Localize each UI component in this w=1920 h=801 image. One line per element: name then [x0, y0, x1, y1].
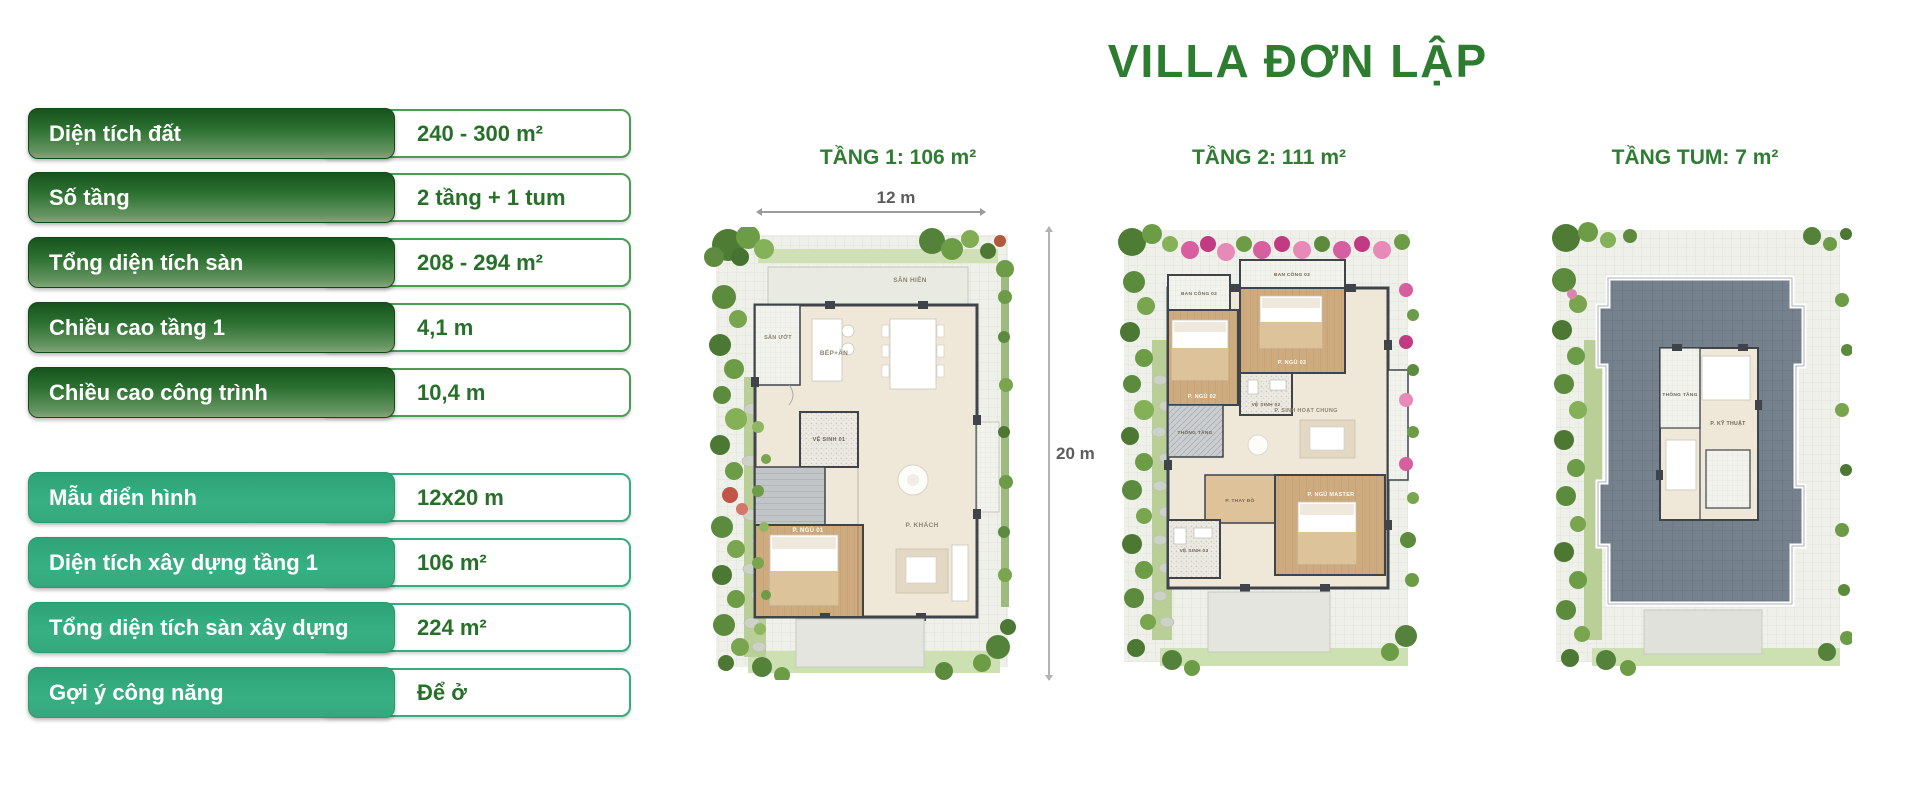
spec-label: Gợi ý công năng	[28, 667, 395, 718]
floor-plan-1-illustration: SÂN HIÊN SÂN ƯỚT BẾP+ĂN VỆ SINH 01 P. KH…	[700, 227, 1020, 680]
driveway	[1644, 610, 1762, 654]
plan-1-height-dimension: 20 m	[1056, 444, 1095, 464]
plan-3-heading: TẦNG TUM: 7 m²	[1545, 146, 1845, 170]
spec-value: 4,1 m	[417, 315, 473, 341]
room-label-bedroom1: P. NGỦ 01	[793, 527, 824, 534]
driveway	[1208, 592, 1330, 652]
floor-plan-3-illustration: THÔNG TẦNG P. KỸ THUẬT	[1542, 220, 1852, 680]
spec-value: 240 - 300 m²	[417, 121, 543, 147]
room-label-bedroom3: P. NGỦ 03	[1278, 359, 1307, 366]
spec-label: Diện tích xây dựng tầng 1	[28, 537, 395, 588]
spec-value: 10,4 m	[417, 380, 486, 406]
spec-label: Chiều cao tầng 1	[28, 302, 395, 353]
villa-infographic: VILLA ĐƠN LẬP 240 - 300 m² Diện tích đất…	[0, 0, 1920, 801]
room-label-porch: SÂN HIÊN	[893, 275, 926, 284]
plan-2-heading: TẦNG 2: 111 m²	[1119, 146, 1419, 170]
spec-label: Chiều cao công trình	[28, 367, 395, 418]
spec-label: Mẫu điển hình	[28, 472, 395, 523]
spec-value: 208 - 294 m²	[417, 250, 543, 276]
spec-value: 106 m²	[417, 550, 487, 576]
plan-1-width-dimension: 12 m	[846, 188, 946, 208]
floor-plan-2-illustration: BAN CÔNG 02 BAN CÔNG 03 P. NGỦ 03 P. NGỦ…	[1110, 220, 1420, 680]
spec-row-chieu-cao-tang-1: 4,1 m Chiều cao tầng 1	[28, 302, 631, 353]
page-title: VILLA ĐƠN LẬP	[1058, 34, 1538, 88]
spec-label: Tổng diện tích sàn	[28, 237, 395, 288]
plan-1-heading: TẦNG 1: 106 m²	[748, 146, 1048, 170]
room-label-master: P. NGỦ MASTER	[1308, 491, 1355, 498]
spec-row-chieu-cao-cong-trinh: 10,4 m Chiều cao công trình	[28, 367, 631, 418]
room-label-family: P. SINH HOẠT CHUNG	[1274, 408, 1337, 414]
room-label-wet-yard: SÂN ƯỚT	[764, 333, 792, 341]
spec-label: Tổng diện tích sàn xây dựng	[28, 602, 395, 653]
spec-row-tong-dien-tich-san: 208 - 294 m² Tổng diện tích sàn	[28, 237, 631, 288]
spec-row-mau-dien-hinh: 12x20 m Mẫu điển hình	[28, 472, 631, 523]
spec-label: Số tầng	[28, 172, 395, 223]
room-label-bedroom2: P. NGỦ 02	[1188, 393, 1217, 400]
spec-row-dien-tich-dat: 240 - 300 m² Diện tích đất	[28, 108, 631, 159]
room-label-technical: P. KỸ THUẬT	[1710, 420, 1746, 427]
spec-row-dien-tich-xay-dung-tang-1: 106 m² Diện tích xây dựng tầng 1	[28, 537, 631, 588]
room-label-wc1: VỆ SINH 01	[813, 435, 846, 443]
room-label-living: P. KHÁCH	[906, 520, 939, 529]
spec-row-tong-dien-tich-san-xay-dung: 224 m² Tổng diện tích sàn xây dựng	[28, 602, 631, 653]
spec-value: 2 tầng + 1 tum	[417, 185, 566, 211]
spec-row-goi-y-cong-nang: Để ở Gợi ý công năng	[28, 667, 631, 718]
building	[751, 267, 999, 621]
roof	[1598, 278, 1804, 604]
driveway	[796, 619, 924, 667]
spec-value: 224 m²	[417, 615, 487, 641]
building	[1164, 260, 1408, 592]
room-label-dressing: P. THAY ĐỒ	[1225, 497, 1254, 504]
plan-1-width-dimension-line	[757, 211, 985, 213]
spec-value: Để ở	[417, 680, 467, 706]
spec-value: 12x20 m	[417, 485, 504, 511]
spec-label: Diện tích đất	[28, 108, 395, 159]
spec-row-so-tang: 2 tầng + 1 tum Số tầng	[28, 172, 631, 223]
plan-1-height-dimension-line	[1048, 227, 1050, 680]
